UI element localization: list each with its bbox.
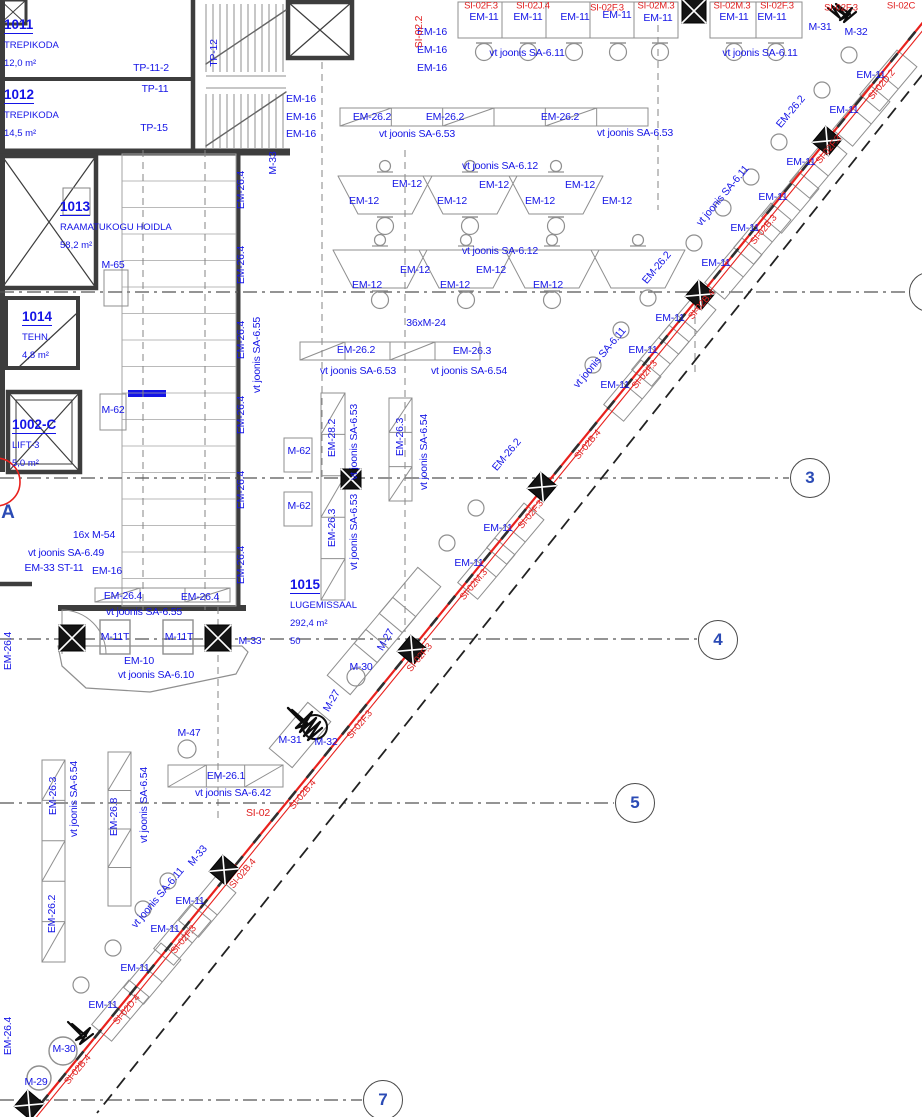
sheet-ref-label: vt joonis SA-6.53 (320, 366, 396, 377)
si-ref-label: SI-02M.3 (714, 1, 751, 11)
ref-label: EM-26.2 (337, 345, 375, 356)
ref-label: EM-26.4 (236, 546, 247, 584)
ref-label: EM-26.1 (207, 771, 245, 782)
sheet-ref-label: vt joonis SA-6.54 (431, 366, 507, 377)
sheet-ref-label: vt joonis SA-6.54 (139, 767, 150, 843)
ref-label: EM-11 (469, 12, 498, 23)
ref-label: 16x M-54 (73, 530, 115, 541)
ref-label: TP-11-2 (133, 63, 169, 74)
ref-label: M-65 (101, 260, 124, 271)
ref-label: M-47 (177, 728, 200, 739)
ref-label: EM-12 (352, 280, 382, 291)
ref-label: EM-26.8 (109, 798, 120, 836)
ref-label: EM-11 (719, 12, 748, 23)
room-label-1014: 1014 TEHN. 4,8 m² (22, 308, 52, 363)
room-area: 12,0 m² (4, 58, 36, 69)
ref-label: EM-16 (92, 566, 122, 577)
sheet-ref-label: vt joonis SA-6.53 (379, 129, 455, 140)
ref-label: EM-10 (124, 656, 154, 667)
si-ref-label: SI-02F.3 (464, 1, 498, 11)
room-label-1012: 1012 TREPIKODA 14,5 m² (4, 86, 59, 141)
room-label-1013: 1013 RAAMATUKOGU HOIDLA 58,2 m² (60, 198, 172, 253)
sheet-ref-label: vt joonis SA-6.11 (722, 48, 797, 59)
ref-label: EM-11 (120, 963, 149, 974)
ref-label: EM-12 (479, 180, 509, 191)
room-label-1011: 1011 TREPIKODA 12,0 m² (4, 16, 59, 71)
ref-label: EM-11 (560, 12, 589, 23)
ref-label: M-29 (24, 1077, 47, 1088)
ref-label: EM-26.4 (3, 1017, 14, 1055)
room-name: TEHN. (22, 332, 51, 343)
room-id: 1012 (4, 87, 34, 104)
room-name: TREPIKODA (4, 110, 59, 121)
ref-label: EM-11 (454, 558, 483, 569)
room-label-1015: 1015 LUGEMISSAAL 292,4 m² 50 (290, 576, 357, 649)
ref-label: EM-26.3 (453, 346, 491, 357)
si-ref-label: SI-02 (246, 808, 270, 819)
ref-label: M-32 (844, 27, 867, 38)
ref-label: EM-11 (150, 924, 179, 935)
si-ref-label: SI-02F.3 (760, 1, 794, 11)
room-id: 1013 (60, 199, 90, 216)
room-area: 5,0 m² (12, 458, 39, 469)
floor-plan-canvas: 1011 TREPIKODA 12,0 m² 1012 TREPIKODA 14… (0, 0, 922, 1117)
ref-label: EM-26.4 (236, 321, 247, 359)
si-ref-label: SI-02C (887, 1, 915, 11)
ref-label: 36xM-24 (406, 318, 445, 329)
grid-bubble: 3 (790, 458, 830, 498)
ref-label: EM-12 (440, 280, 470, 291)
ref-label: EM-11 (628, 345, 657, 356)
sheet-ref-label: vt joonis SA-6.54 (69, 761, 80, 837)
sheet-ref-label: vt joonis SA-6.10 (118, 670, 194, 681)
ref-label: EM-12 (565, 180, 595, 191)
ref-label: M-33 (238, 636, 261, 647)
grid-bubble: 5 (615, 783, 655, 823)
ref-label: EM-26.4 (104, 591, 142, 602)
ref-label: EM-11 (786, 157, 815, 168)
ref-label: EM-28.2 (327, 419, 338, 457)
ref-label: M-32 (314, 737, 337, 748)
ref-label: EM-26.2 (47, 895, 58, 933)
grid-bubble: 4 (698, 620, 738, 660)
grid-bubble: 7 (363, 1080, 403, 1117)
room-name: RAAMATUKOGU HOIDLA (60, 222, 172, 233)
ref-label: M-31 (278, 735, 301, 746)
sheet-ref-label: vt joonis SA-6.53 (597, 128, 673, 139)
sheet-ref-label: vt joonis SA-6.12 (462, 161, 538, 172)
ref-label: EM-26.4 (181, 592, 219, 603)
room-name: TREPIKODA (4, 40, 59, 51)
ref-label: TP-11 (142, 84, 169, 95)
room-name: LUGEMISSAAL (290, 600, 357, 611)
ref-label: M-11T (165, 632, 194, 643)
ref-label: EM-26.3 (395, 418, 406, 456)
ref-label: EM-11 (88, 1000, 117, 1011)
room-id: 1015 (290, 577, 320, 594)
ref-label: EM-11 (175, 896, 204, 907)
ref-label: EM-26.3 (327, 509, 338, 547)
room-area: 292,4 m² (290, 618, 328, 629)
si-ref-label: SI-02M.3 (638, 1, 675, 11)
ref-label: EM-12 (349, 196, 379, 207)
ref-label: EM-12 (525, 196, 555, 207)
ref-label: EM-11 (757, 12, 786, 23)
ref-label: EM-26.3 (48, 777, 59, 815)
ref-label: EM-11 (643, 13, 672, 24)
ref-label: EM-11 (655, 313, 684, 324)
sheet-ref-label: vt joonis SA-6.53 (349, 404, 360, 480)
ref-label: M-30 (349, 662, 372, 673)
ref-label: EM-11 (600, 380, 629, 391)
room-area: 58,2 m² (60, 240, 92, 251)
ref-label: EM-26.2 (541, 112, 579, 123)
ref-label: M-62 (287, 446, 310, 457)
room-id: 1014 (22, 309, 52, 326)
sheet-ref-label: vt joonis SA-6.12 (462, 246, 538, 257)
sheet-ref-label: vt joonis SA-6.11 (489, 48, 564, 59)
ref-label: EM-26.2 (353, 112, 391, 123)
sheet-ref-label: vt joonis SA-6.54 (419, 414, 430, 490)
sheet-ref-label: vt joonis SA-6.49 (28, 548, 104, 559)
ref-label: M-11T (101, 632, 130, 643)
ref-label: EM-11 (483, 523, 512, 534)
sheet-ref-label: vt joonis SA-6.55 (252, 317, 263, 393)
grid-letter: A (1, 502, 15, 524)
si-ref-label: SI-02F.3 (824, 3, 858, 13)
ref-label: M-62 (287, 501, 310, 512)
ref-label: EM-16 (417, 63, 447, 74)
ref-label: EM-26.4 (236, 246, 247, 284)
ref-label: EM-26.4 (236, 171, 247, 209)
room-area: 14,5 m² (4, 128, 36, 139)
room-label-1002c: 1002-C LIFT-3 5,0 m² (12, 416, 56, 471)
si-ref-label: SI-02F.3 (590, 3, 624, 13)
ref-label: EM-11 (701, 258, 730, 269)
ref-label: EM-12 (476, 265, 506, 276)
ref-label: EM-11 (758, 192, 787, 203)
ref-label: M-30 (52, 1044, 75, 1055)
ref-label: EM-26.4 (3, 632, 14, 670)
ref-label: EM-12 (602, 196, 632, 207)
ref-label: EM-12 (392, 179, 422, 190)
sheet-ref-label: vt joonis SA-6.42 (195, 788, 271, 799)
si-ref-label: SI-02.2 (414, 16, 425, 48)
room-id: 1002-C (12, 417, 56, 434)
room-id: 1011 (4, 17, 33, 34)
ref-label: TP-15 (140, 123, 168, 134)
room-name: LIFT-3 (12, 440, 39, 451)
ref-label: EM-16 (286, 94, 316, 105)
ref-label: EM-12 (400, 265, 430, 276)
si-ref-label: SI-02J.4 (516, 1, 550, 11)
ref-label: EM-16 (286, 129, 316, 140)
ref-label: EM-12 (533, 280, 563, 291)
ref-label: EM-26.4 (236, 396, 247, 434)
sheet-ref-label: vt joonis SA-6.53 (349, 494, 360, 570)
ref-label: M-31 (808, 22, 831, 33)
room-area: 4,8 m² (22, 350, 49, 361)
ref-label: EM-11 (513, 12, 542, 23)
ref-label: EM-26.4 (236, 471, 247, 509)
ref-label: EM-11 (829, 105, 858, 116)
ref-label: EM-12 (437, 196, 467, 207)
ref-label: EM-16 (286, 112, 316, 123)
sheet-ref-label: vt joonis SA-6.55 (106, 607, 182, 618)
room-occupancy: 50 (290, 636, 301, 647)
ref-label: TP-12 (209, 39, 220, 67)
ref-label: M-62 (101, 405, 124, 416)
ref-label: EM-26.2 (426, 112, 464, 123)
ref-label: EM-33 ST-11 (25, 563, 84, 574)
ref-label: M-33 (268, 151, 279, 174)
